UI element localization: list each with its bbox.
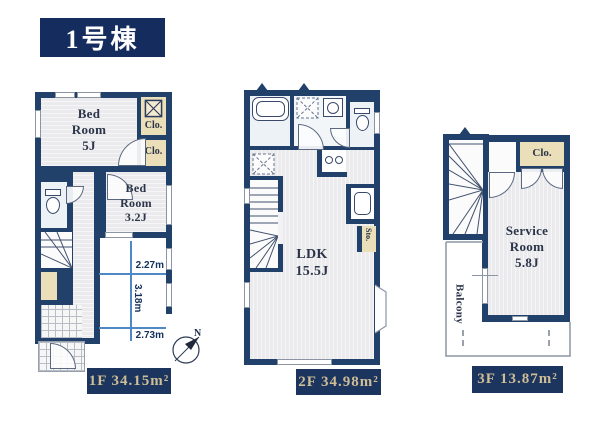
f2-kitchen-wall-bottom (317, 172, 347, 177)
f3-landing-floor (489, 142, 516, 170)
f2-area-label: 2F 34.98m² (298, 374, 379, 391)
f1-window-bedroom32-right (166, 185, 172, 225)
f1-bedroom32-label: Bed Room 3.2J (108, 178, 164, 228)
bay-window-icon (374, 284, 390, 334)
f3-area-label: 3F 13.87m² (477, 371, 558, 388)
f1-window-measure-right-2 (166, 283, 172, 307)
f2-roof-vent-1 (256, 83, 268, 91)
f2-stairs-icon (250, 180, 278, 268)
building-title: 1号棟 (65, 19, 139, 56)
f2-window-left-1 (244, 188, 250, 204)
f1-dim-bottom-label: 2.73m (120, 330, 164, 341)
stove-icon (322, 150, 346, 172)
f3-roof-vent (459, 127, 471, 135)
f2-storage-label: Sto. (364, 228, 373, 241)
vanity-bowl (327, 102, 339, 114)
f3-drain-mark-1 (462, 330, 465, 346)
f1-hall-closet (41, 272, 57, 300)
compass-north-label: N (194, 328, 202, 339)
f1-dim-line-bottom (99, 327, 166, 329)
stove-burner-2 (335, 156, 343, 164)
f1-window-top-1 (55, 92, 75, 98)
floorplan-canvas: 1号棟 Clo. Clo. Bed Room 5J B (0, 0, 600, 422)
f2-roof-vent-2 (298, 83, 310, 91)
f2-window-left-2 (244, 282, 250, 308)
bathtub-icon (252, 97, 289, 121)
f1-dim-vertical-label: 3.18m (132, 284, 143, 312)
toilet-icon (45, 189, 61, 196)
f1-area-label-box: 1F 34.15m² (87, 368, 171, 394)
f3-stairs-icon (449, 140, 483, 234)
f1-window-bedroom32-bottom (105, 232, 133, 238)
f1-dim-line-top (99, 273, 166, 275)
f2-window-toilet-right (374, 112, 380, 134)
closet-shelf-icon (144, 99, 163, 118)
f3-closet-label: Clo. (520, 147, 564, 159)
washer-space-icon-2 (252, 153, 275, 175)
f1-area-label: 1F 34.15m² (89, 373, 170, 390)
f2-toilet-tank (354, 108, 370, 114)
f1-dim-top-label: 2.27m (120, 260, 164, 271)
f2-window-bottom (277, 359, 332, 365)
f1-window-top-2 (77, 92, 101, 98)
f1-closet-top-label: Clo. (141, 120, 166, 131)
f3-area-label-box: 3F 13.87m² (472, 366, 563, 393)
compass-rose-icon: N (168, 326, 208, 366)
building-title-box: 1号棟 (40, 18, 165, 57)
stairs-icon (41, 232, 72, 268)
f2-ldk-label: LDK 15.5J (280, 246, 344, 280)
f1-window-measure-right-1 (166, 248, 172, 270)
kitchen-sink-icon (354, 192, 371, 215)
f3-top-wall (483, 135, 570, 142)
f2-area-label-box: 2F 34.98m² (296, 369, 381, 395)
f1-genkan-tile (41, 305, 82, 338)
bathtub-inner (256, 101, 285, 117)
f3-drain-mark-2 (548, 330, 551, 346)
stove-burner-1 (325, 156, 333, 164)
washer-space-icon (296, 97, 319, 119)
vanity-sink-icon (323, 98, 343, 117)
f2-stairs-opening (278, 212, 283, 244)
f3-service-room-label: Service Room 5.8J (494, 222, 560, 272)
f1-bedroom5-label: Bed Room 5J (43, 104, 135, 156)
f1-window-left (35, 110, 41, 138)
